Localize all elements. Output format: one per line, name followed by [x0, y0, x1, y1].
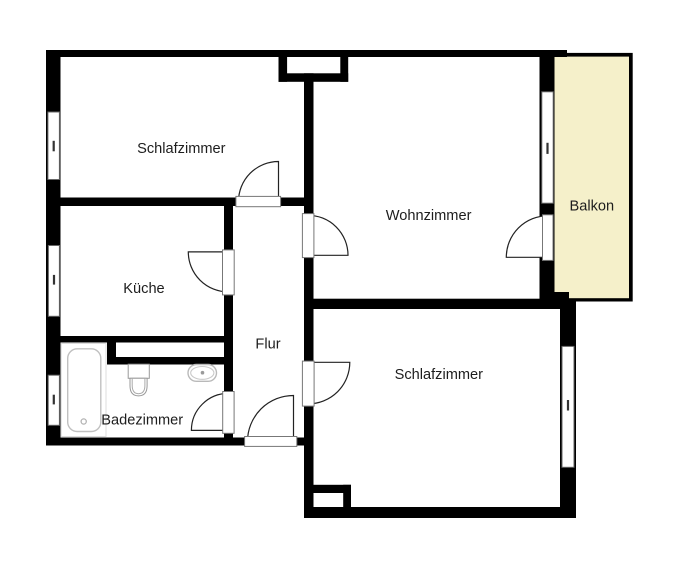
svg-text:Wohnzimmer: Wohnzimmer — [386, 208, 472, 224]
svg-text:Balkon: Balkon — [569, 199, 614, 215]
svg-text:Schlafzimmer: Schlafzimmer — [395, 367, 484, 383]
svg-text:Badezimmer: Badezimmer — [101, 413, 183, 429]
svg-text:Flur: Flur — [255, 337, 280, 353]
svg-text:Schlafzimmer: Schlafzimmer — [137, 141, 226, 157]
svg-text:Küche: Küche — [123, 281, 164, 297]
